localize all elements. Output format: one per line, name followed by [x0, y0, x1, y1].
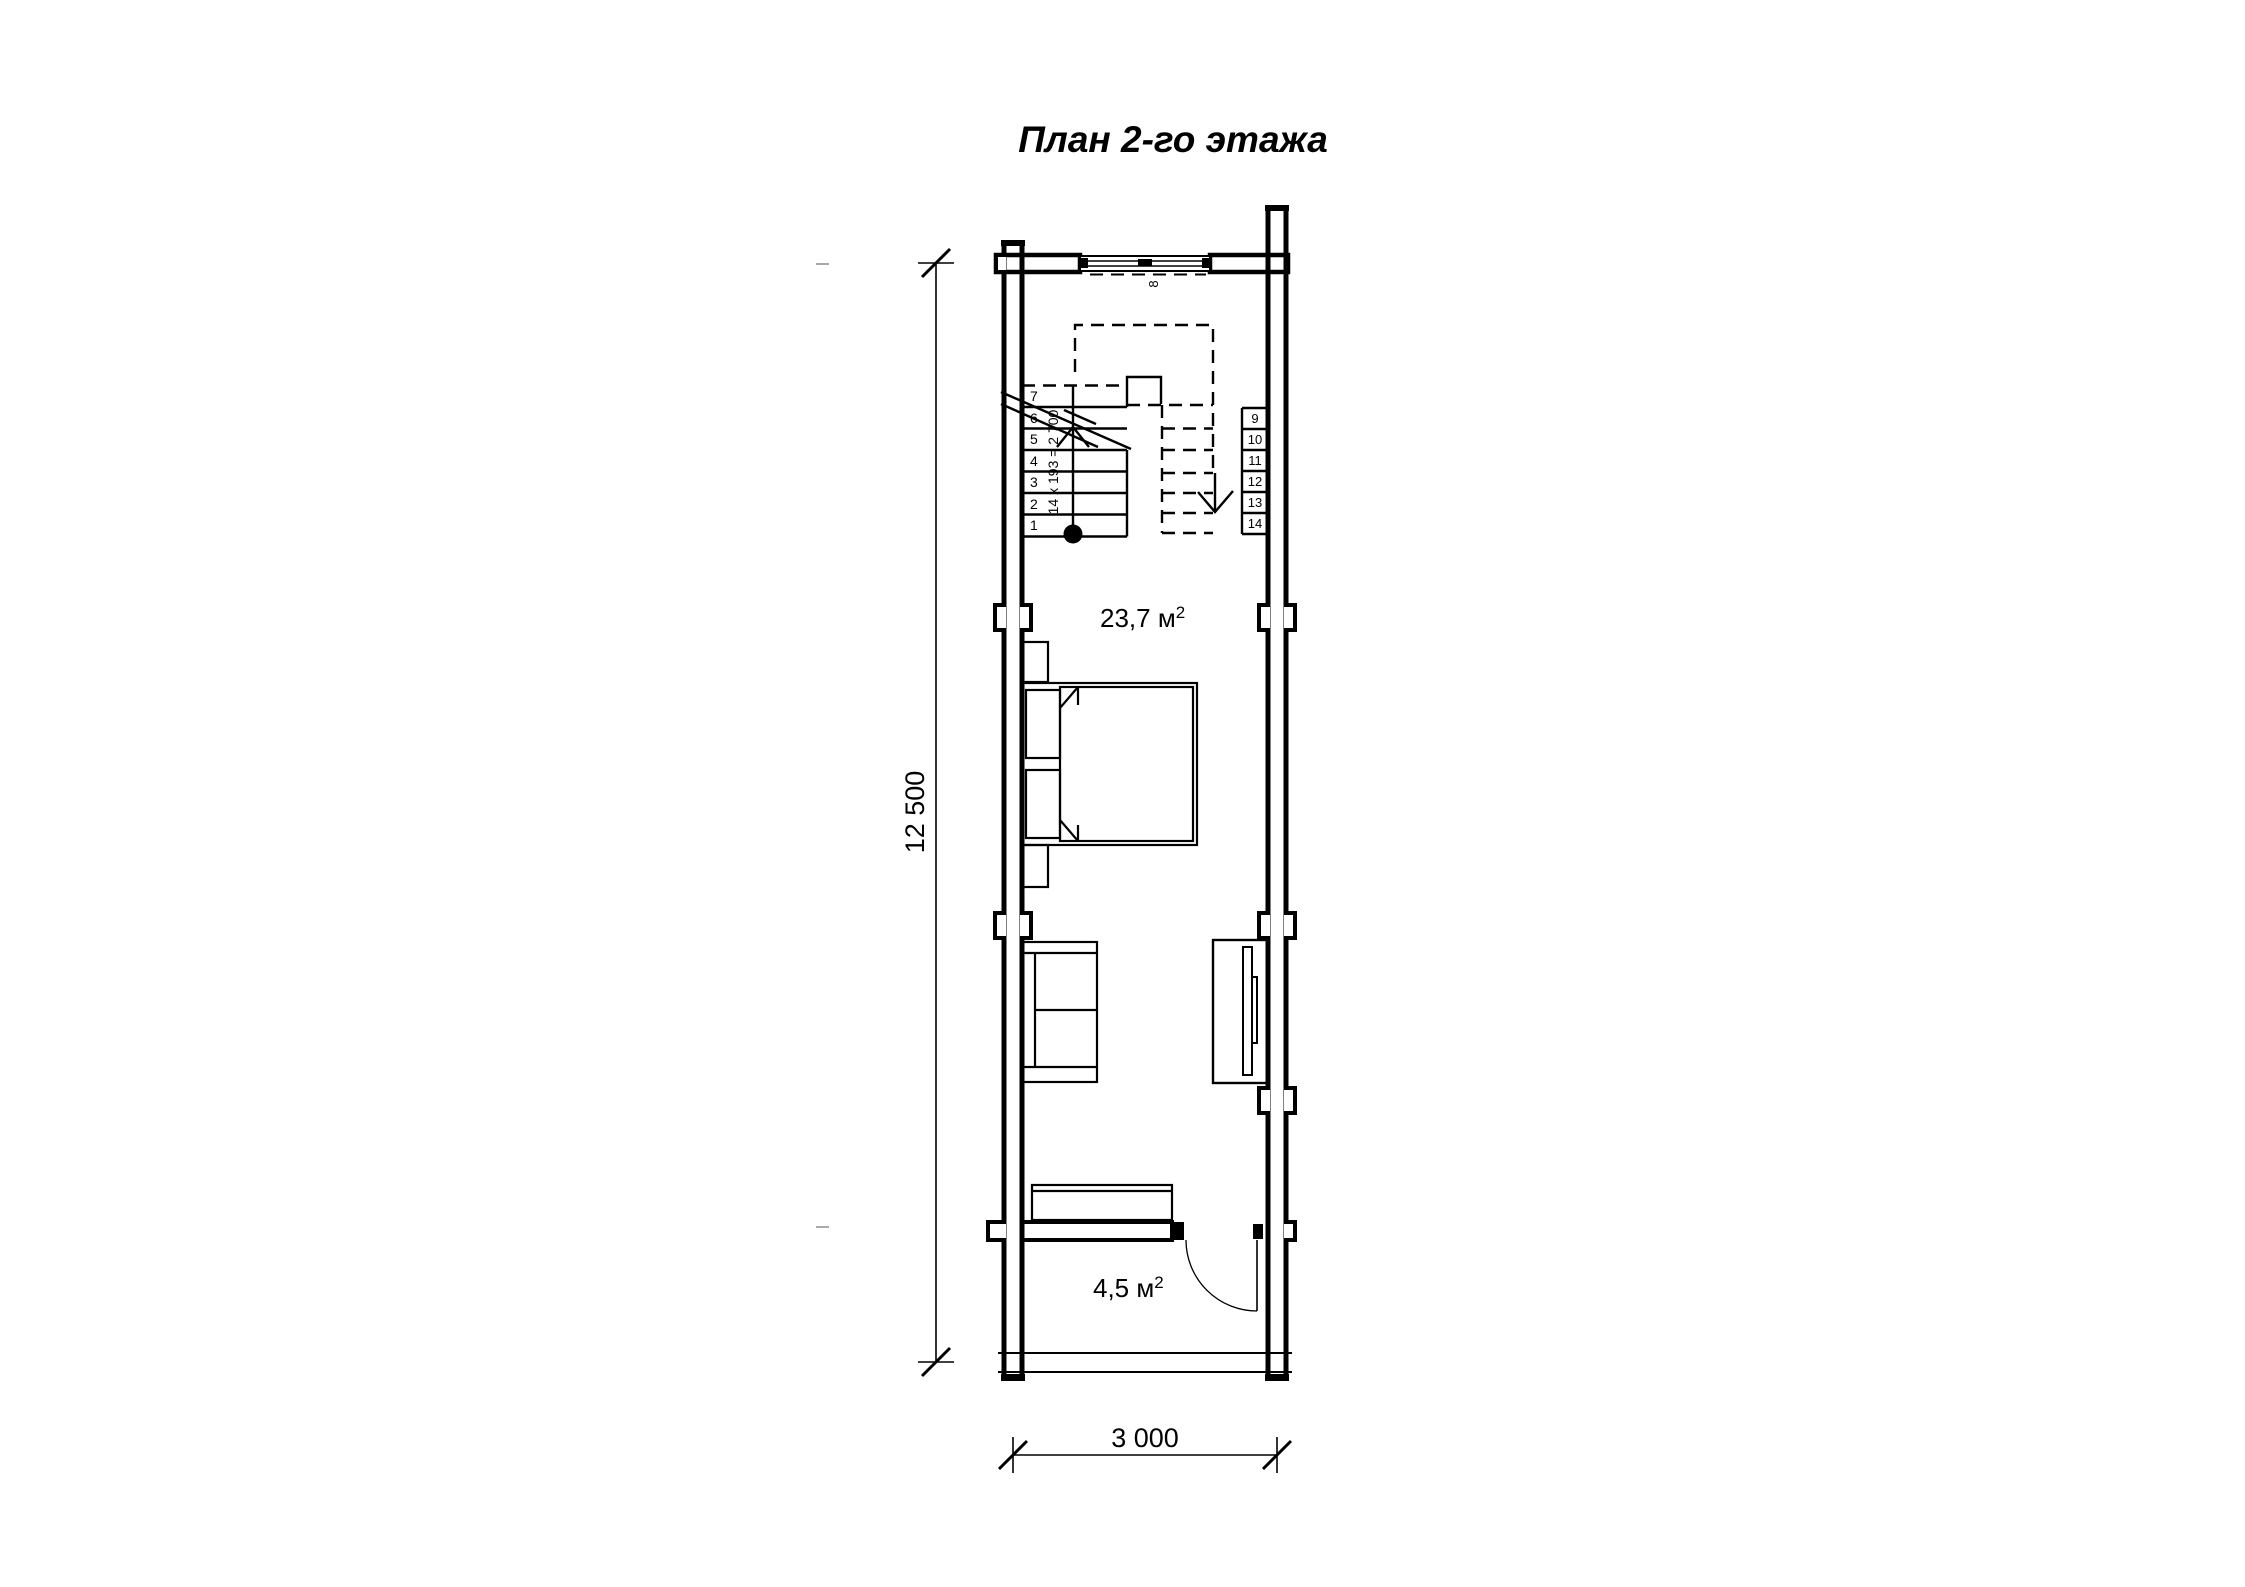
- step-number: 10: [1248, 432, 1262, 447]
- door-jamb-right: [1253, 1224, 1263, 1239]
- door: [1172, 1222, 1263, 1311]
- bed: [1022, 683, 1197, 845]
- tv-mount: [1252, 977, 1257, 1043]
- room-area-small-sup: 2: [1154, 1273, 1163, 1292]
- nightstand-top: [1022, 642, 1048, 682]
- wall-interior-door: [1022, 1222, 1172, 1240]
- step-number: 2: [1030, 496, 1038, 512]
- room-area-small-value: 4,5 м: [1093, 1273, 1154, 1303]
- bed-pillow-bottom: [1026, 770, 1060, 838]
- walls: [996, 208, 1288, 1378]
- step-number: 5: [1030, 431, 1038, 447]
- step-number: 13: [1248, 495, 1262, 510]
- step-number: 9: [1251, 411, 1258, 426]
- sofa-outline: [1022, 942, 1097, 1082]
- step-number: 6: [1030, 410, 1038, 426]
- tv-stand: [1213, 940, 1268, 1083]
- window-center-mark: [1138, 259, 1152, 266]
- step-number: 3: [1030, 474, 1038, 490]
- terrace-edge-lines: [998, 1353, 1292, 1372]
- stair-direction-arrow: [1057, 386, 1233, 544]
- stair-formula: 14 x 193 = 2 700: [1045, 409, 1061, 514]
- stair-landing-number: 8: [1146, 280, 1161, 287]
- tv-screen: [1243, 947, 1252, 1075]
- dimension-vertical: 12 500: [900, 249, 954, 1376]
- floor-plan-sheet: План 2-го этажа: [0, 0, 2245, 1587]
- dimension-horizontal: 3 000: [999, 1423, 1291, 1473]
- wall-caps: [1001, 205, 1289, 1381]
- step-number: 4: [1030, 453, 1038, 469]
- nightstands: [1022, 642, 1048, 887]
- door-jamb-left: [1172, 1222, 1184, 1240]
- sofa: [1022, 942, 1097, 1082]
- stair-left-flight: [1022, 377, 1161, 537]
- room-area-main-value: 23,7 м: [1100, 603, 1176, 633]
- bed-mattress: [1060, 687, 1193, 841]
- step-number: 11: [1248, 453, 1262, 468]
- window-jamb-left: [1080, 258, 1088, 268]
- page-title: План 2-го этажа: [1018, 119, 1328, 160]
- stair-left-step-numbers: 7 6 5 4 3 2 1: [1030, 388, 1038, 533]
- blanket-fold-bottom: [1060, 820, 1078, 841]
- room-area-small: 4,5 м2: [1093, 1273, 1164, 1303]
- room-area-main-sup: 2: [1176, 603, 1185, 622]
- dimension-width-label: 3 000: [1111, 1423, 1179, 1453]
- wall-right: [1268, 208, 1286, 1378]
- floor-plan-drawing: План 2-го этажа: [0, 0, 2245, 1587]
- window-jamb-right: [1202, 258, 1210, 268]
- wall-north-right: [1210, 255, 1288, 272]
- wall-north-left: [996, 255, 1080, 272]
- blanket-fold-top: [1060, 687, 1078, 708]
- nightstand-bottom: [1022, 845, 1048, 887]
- step-number: 1: [1030, 517, 1038, 533]
- step-number: 7: [1030, 388, 1038, 404]
- door-swing-arc: [1186, 1240, 1257, 1311]
- step-number: 12: [1248, 474, 1262, 489]
- bed-frame: [1022, 683, 1197, 845]
- staircase: 7 6 5 4 3 2 1 9 10 11 12 13 14 14 x 193 …: [1001, 280, 1268, 543]
- room-area-main: 23,7 м2: [1100, 603, 1185, 633]
- bed-pillow-top: [1026, 690, 1060, 758]
- tv-cabinet: [1213, 940, 1268, 1083]
- bench: [1032, 1185, 1172, 1220]
- dimension-height-label: 12 500: [900, 771, 930, 854]
- axis-marks: [816, 264, 829, 1227]
- window-north: [1080, 256, 1210, 275]
- step-number: 14: [1248, 516, 1262, 531]
